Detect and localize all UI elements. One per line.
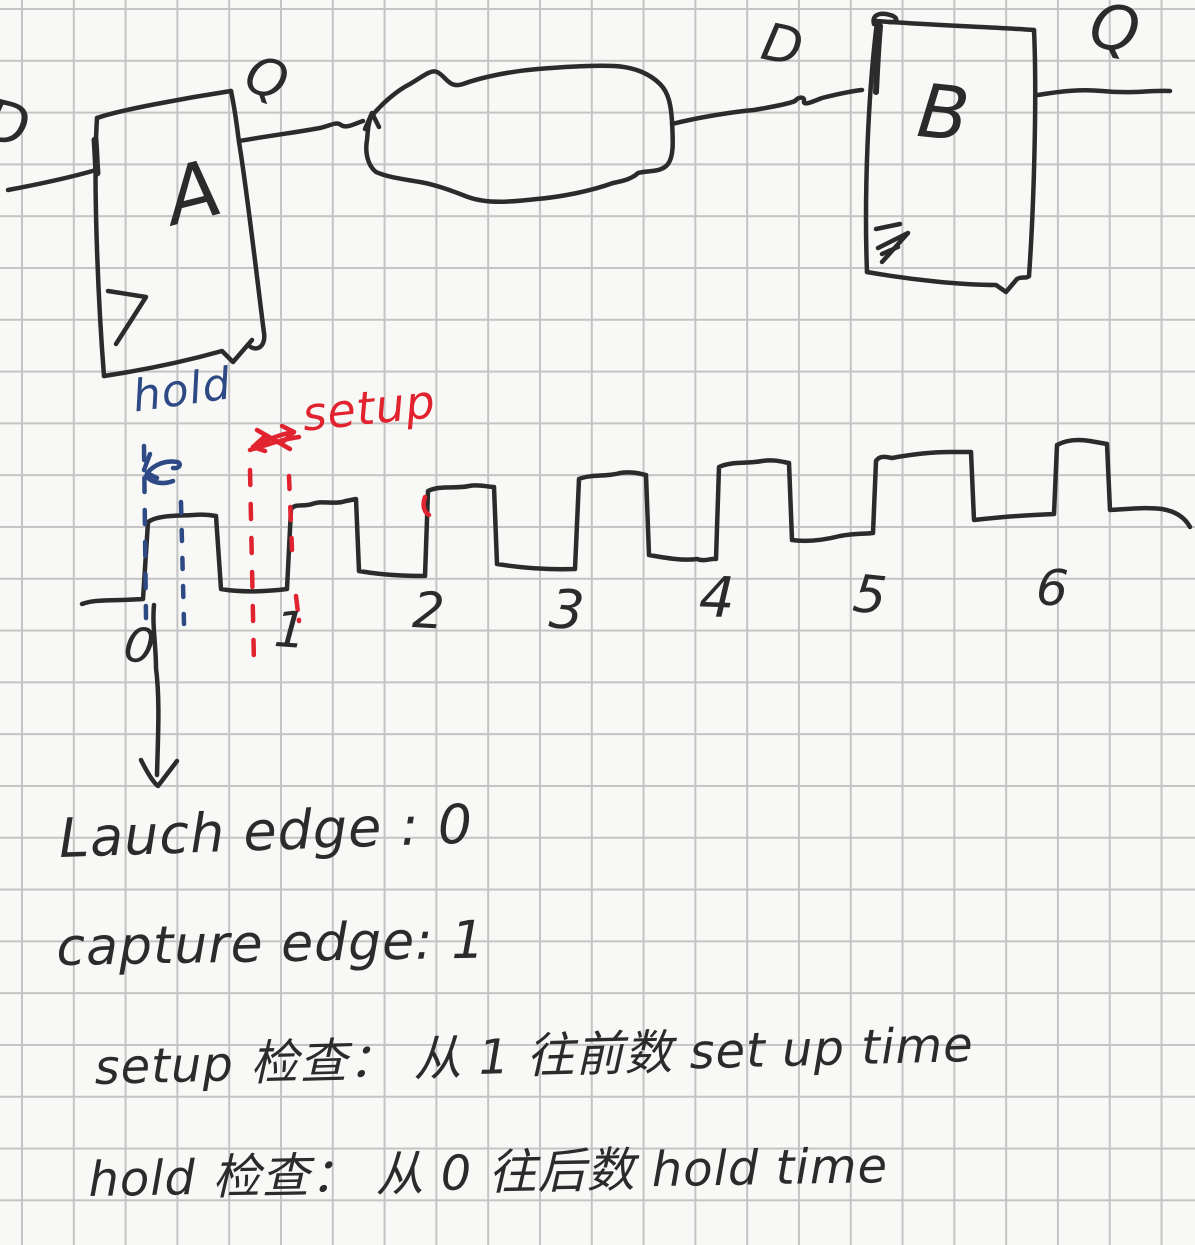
q-output-wire-b bbox=[1038, 90, 1170, 95]
edge-number-1: 1 bbox=[273, 604, 309, 656]
edge-number-2: 2 bbox=[411, 585, 446, 637]
cloud-to-b-wire bbox=[672, 90, 862, 124]
ff-b-name-label: B bbox=[914, 74, 973, 153]
edge-number-5: 5 bbox=[851, 568, 890, 623]
notebook-page: D Q A D B Q hold setup 0 1 2 3 4 5 6 Lau… bbox=[0, 0, 1195, 1245]
edge-number-4: 4 bbox=[698, 570, 737, 627]
combinational-logic-cloud-icon bbox=[365, 66, 673, 202]
flipflop-a-clock-icon bbox=[108, 291, 146, 344]
edge-number-6: 6 bbox=[1035, 562, 1071, 614]
launch-edge-note: Lauch edge : 0 bbox=[58, 798, 474, 866]
clock-waveform bbox=[82, 440, 1190, 604]
hold-check-note: hold 检查： 从 0 往后数 hold time bbox=[88, 1142, 888, 1204]
hold-label: hold bbox=[130, 362, 234, 419]
setup-double-arrow-icon bbox=[250, 426, 299, 451]
q-output-wire-a bbox=[239, 121, 363, 141]
cloud-entry-arrowhead-icon bbox=[365, 113, 379, 129]
flipflop-b-clock-icon bbox=[876, 224, 908, 262]
d-input-wire-a bbox=[8, 170, 96, 190]
edge-number-3: 3 bbox=[547, 582, 587, 639]
capture-edge-note: capture edge: 1 bbox=[56, 915, 486, 974]
setup-label: setup bbox=[300, 378, 438, 438]
hold-scribble-arrow-icon bbox=[144, 454, 180, 483]
